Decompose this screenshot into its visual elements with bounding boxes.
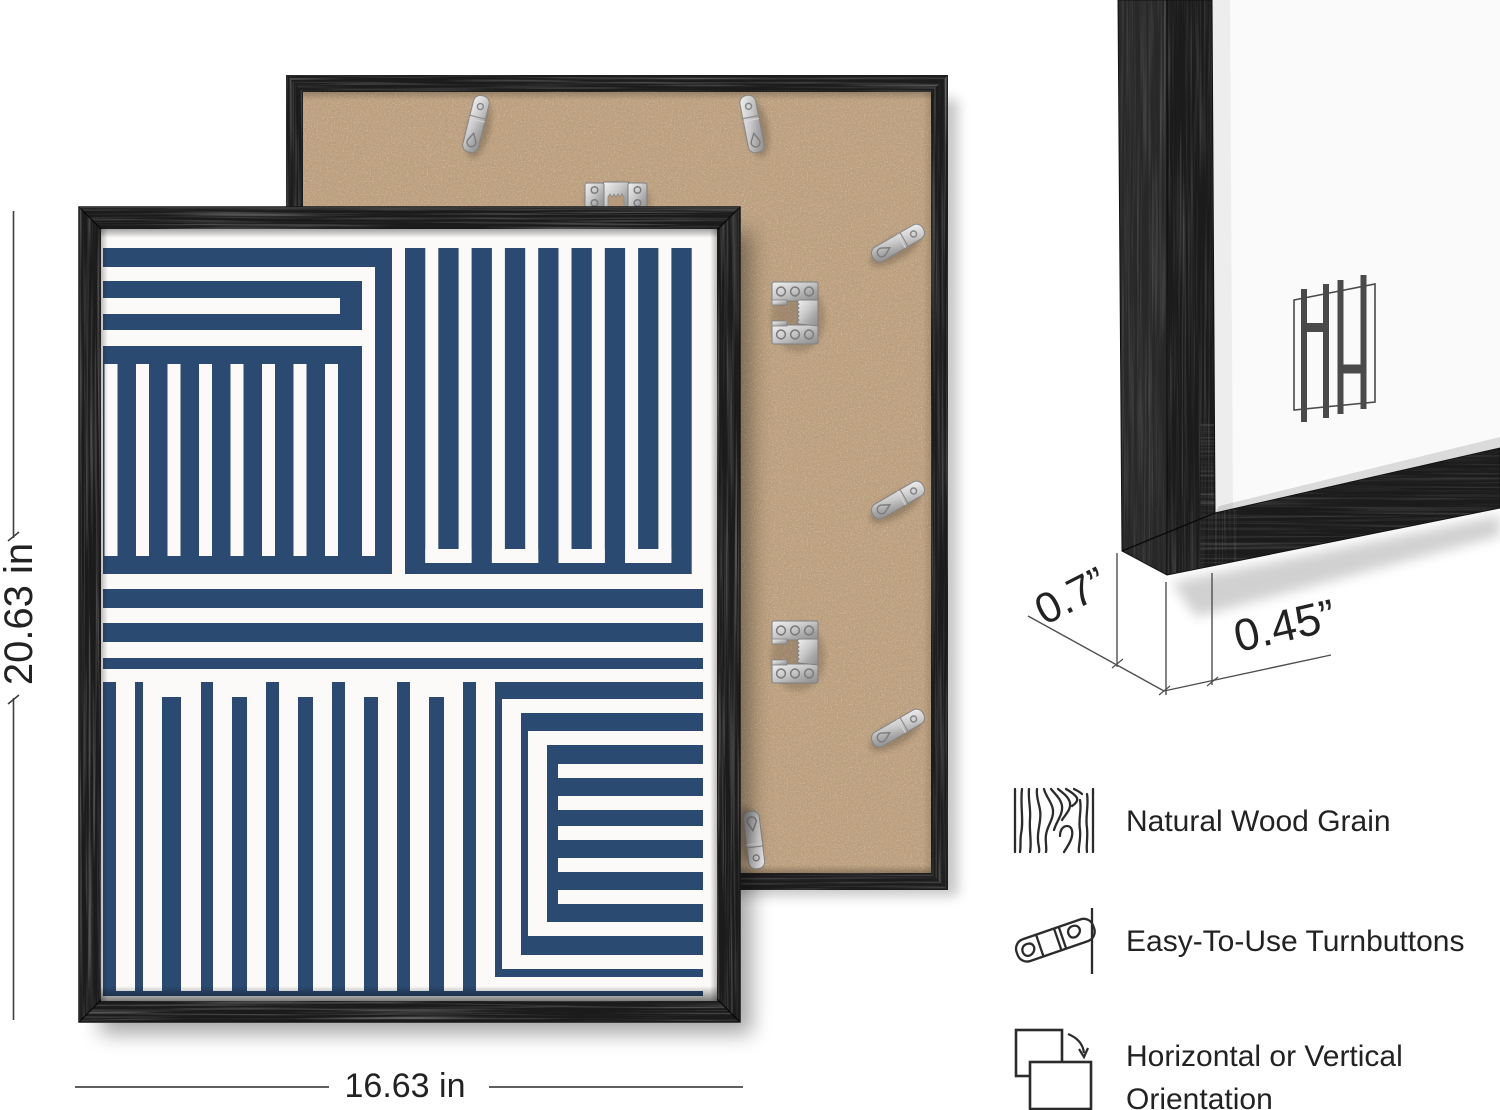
svg-text:Horizontal or Vertical: Horizontal or Vertical xyxy=(1126,1040,1403,1073)
svg-text:16.63 in: 16.63 in xyxy=(345,1067,466,1105)
svg-text:Natural Wood Grain: Natural Wood Grain xyxy=(1126,805,1391,838)
svg-text:Easy-To-Use Turnbuttons: Easy-To-Use Turnbuttons xyxy=(1126,925,1464,958)
svg-text:20.63 in: 20.63 in xyxy=(0,543,41,685)
svg-text:Orientation: Orientation xyxy=(1126,1083,1273,1110)
